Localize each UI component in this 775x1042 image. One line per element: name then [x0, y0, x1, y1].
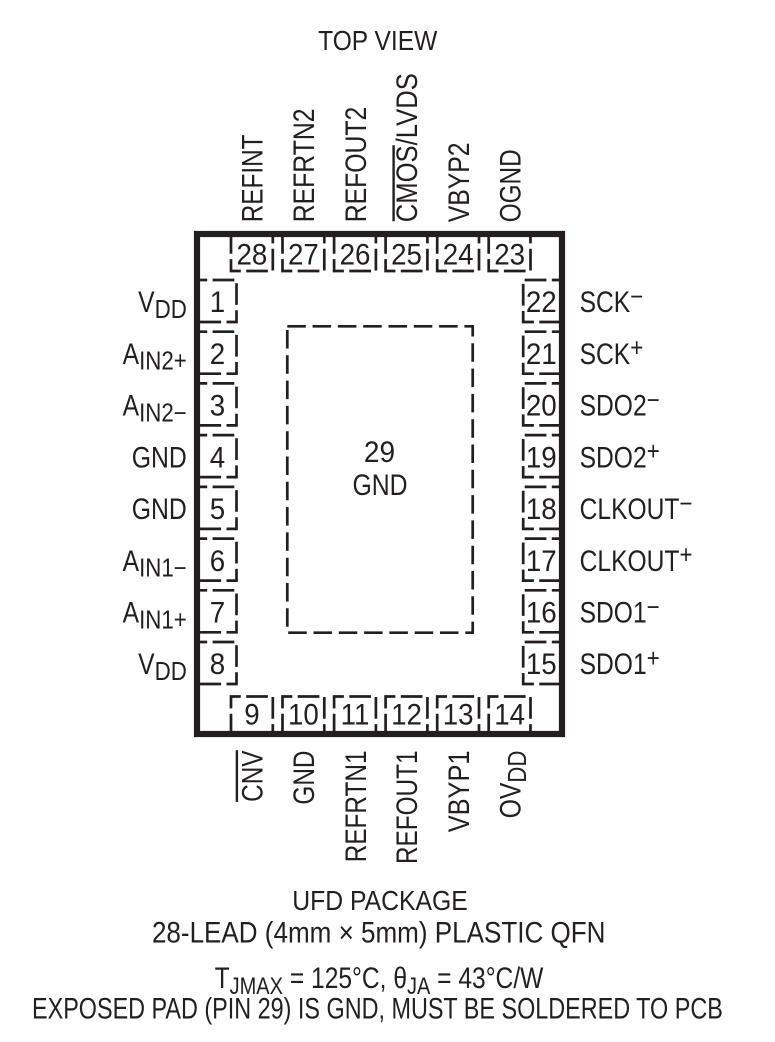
svg-text:V: V [138, 647, 154, 681]
svg-text:OV: OV [493, 783, 527, 819]
svg-text:19: 19 [526, 442, 557, 475]
svg-text:3: 3 [210, 390, 225, 423]
svg-text:4: 4 [210, 442, 225, 475]
svg-text:REFRTN1: REFRTN1 [340, 751, 373, 863]
svg-text:20: 20 [526, 390, 557, 423]
svg-text:11: 11 [341, 699, 370, 732]
svg-text:DD: DD [155, 296, 187, 325]
svg-text:10: 10 [288, 699, 319, 732]
svg-text:+: + [680, 541, 693, 570]
svg-text:26: 26 [340, 239, 371, 272]
svg-text:−: − [680, 490, 693, 519]
svg-text:6: 6 [210, 545, 225, 578]
svg-text:23: 23 [494, 239, 525, 272]
svg-text:1: 1 [210, 286, 225, 319]
svg-text:IN2+: IN2+ [139, 347, 187, 376]
svg-text:SDO2: SDO2 [580, 388, 647, 422]
svg-text:IN2−: IN2− [139, 399, 187, 428]
svg-text:GND: GND [132, 492, 187, 526]
svg-text:UFD PACKAGE: UFD PACKAGE [292, 885, 468, 917]
svg-text:22: 22 [526, 286, 557, 319]
svg-text:21: 21 [526, 338, 557, 371]
svg-text:DD: DD [504, 751, 533, 783]
svg-text:8: 8 [210, 648, 225, 681]
svg-text:EXPOSED PAD (PIN 29) IS GND, M: EXPOSED PAD (PIN 29) IS GND, MUST BE SOL… [32, 992, 723, 1025]
svg-text:−: − [647, 386, 660, 415]
svg-text:SDO2: SDO2 [580, 440, 647, 474]
svg-text:GND: GND [132, 440, 187, 474]
svg-text:SCK: SCK [580, 285, 631, 319]
svg-text:CLKOUT: CLKOUT [580, 492, 680, 526]
svg-text:CMOS/LVDS: CMOS/LVDS [391, 73, 424, 222]
svg-text:−: − [630, 283, 643, 312]
svg-text:SDO1: SDO1 [580, 647, 647, 681]
svg-text:−: − [647, 593, 660, 622]
svg-text:5: 5 [210, 493, 225, 526]
svg-text:A: A [123, 337, 140, 371]
svg-text:REFINT: REFINT [236, 134, 269, 222]
svg-text:13: 13 [443, 699, 474, 732]
svg-text:IN1+: IN1+ [139, 606, 187, 635]
svg-text:VBYP1: VBYP1 [442, 751, 475, 833]
svg-text:16: 16 [526, 597, 557, 630]
svg-text:12: 12 [391, 699, 422, 732]
svg-text:TOP VIEW: TOP VIEW [318, 25, 438, 57]
svg-text:SCK: SCK [580, 337, 631, 371]
svg-text:A: A [123, 388, 140, 422]
svg-text:REFOUT2: REFOUT2 [339, 107, 373, 223]
svg-text:28-LEAD (4mm × 5mm) PLASTIC QF: 28-LEAD (4mm × 5mm) PLASTIC QFN [152, 916, 606, 949]
svg-text:17: 17 [526, 545, 557, 578]
svg-text:SDO1: SDO1 [580, 595, 647, 629]
svg-text:A: A [123, 544, 140, 578]
svg-text:2: 2 [210, 338, 225, 371]
svg-text:GND: GND [288, 751, 321, 805]
svg-text:CNV: CNV [236, 751, 269, 802]
svg-text:28: 28 [236, 239, 267, 272]
svg-text:V: V [138, 285, 154, 319]
svg-text:24: 24 [443, 239, 474, 272]
svg-text:9: 9 [244, 699, 259, 732]
svg-text:IN1−: IN1− [139, 554, 187, 583]
svg-text:29: 29 [364, 436, 395, 469]
svg-text:15: 15 [526, 648, 557, 681]
svg-text:OGND: OGND [494, 149, 527, 222]
svg-text:GND: GND [352, 468, 407, 502]
svg-text:REFRTN2: REFRTN2 [287, 108, 321, 222]
svg-text:+: + [630, 334, 643, 363]
svg-text:14: 14 [494, 699, 525, 732]
svg-text:7: 7 [210, 597, 225, 630]
svg-text:18: 18 [526, 493, 557, 526]
svg-text:+: + [647, 438, 660, 467]
svg-text:DD: DD [155, 658, 187, 687]
svg-text:A: A [123, 595, 140, 629]
svg-text:CLKOUT: CLKOUT [580, 544, 680, 578]
svg-text:27: 27 [288, 239, 319, 272]
svg-text:REFOUT1: REFOUT1 [391, 751, 424, 865]
svg-text:+: + [647, 645, 660, 674]
svg-text:25: 25 [391, 239, 422, 272]
svg-text:VBYP2: VBYP2 [442, 142, 476, 222]
